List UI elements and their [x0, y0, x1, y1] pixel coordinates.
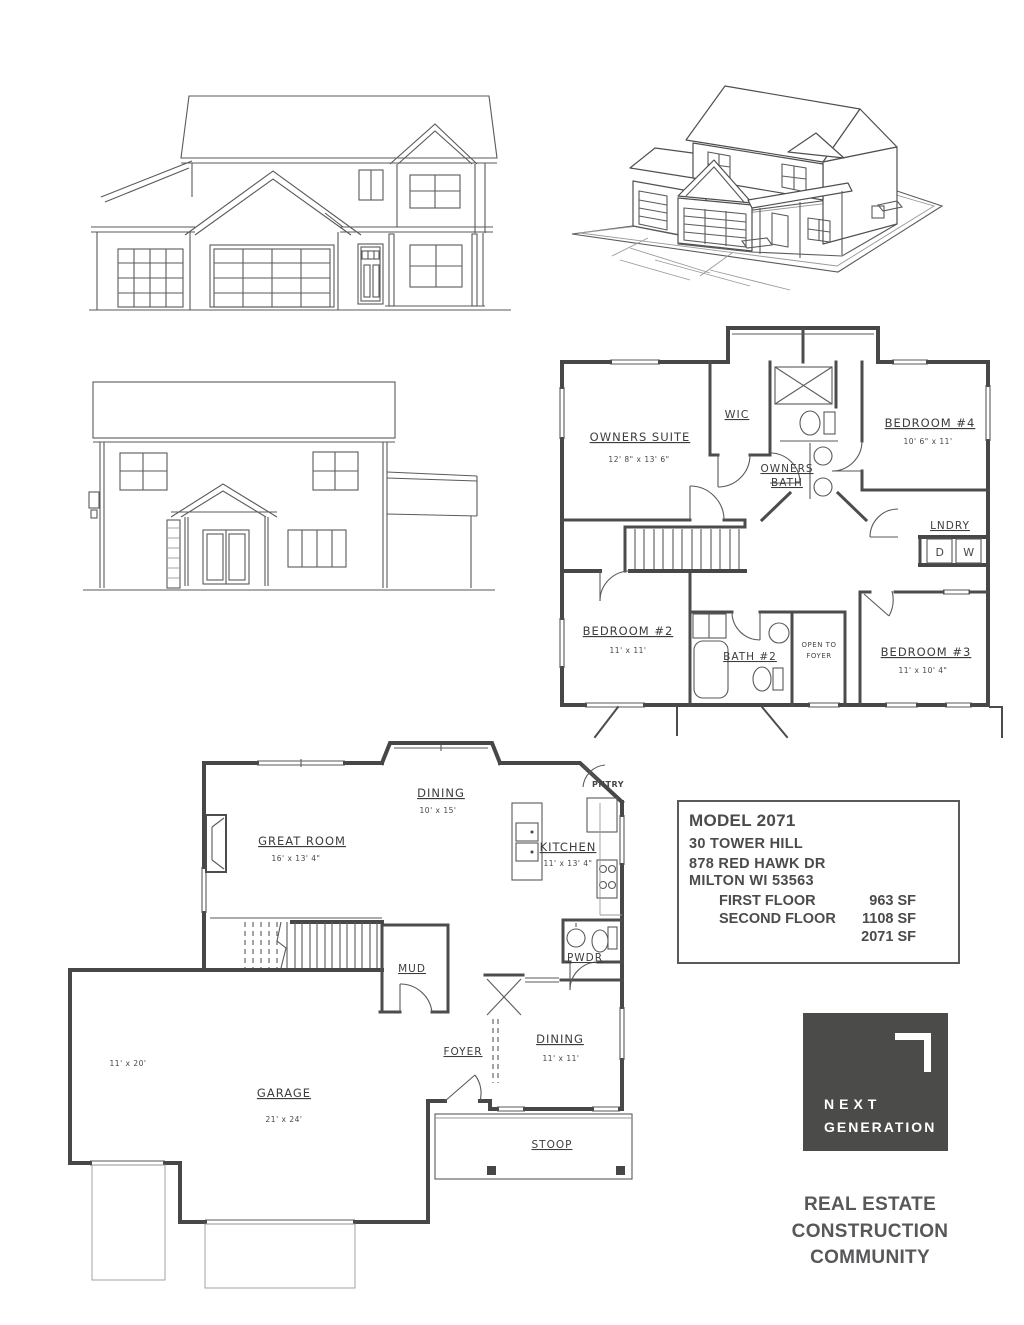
area-row-label: SECOND FLOOR [719, 911, 836, 927]
tagline-line-2: CONSTRUCTION [758, 1219, 982, 1246]
label-bedroom2: BEDROOM #2 [583, 624, 674, 638]
isometric-view-drawing [560, 48, 980, 318]
rear-patio-door [203, 530, 249, 584]
plan-info-box: MODEL 2071 30 TOWER HILL 878 RED HAWK DR… [677, 800, 960, 964]
label-great-room: GREAT ROOM [258, 834, 346, 848]
iso-front-door [772, 213, 788, 247]
front-entry-door [358, 244, 383, 304]
rear-upper-window-right [313, 452, 358, 490]
large-garage-door [210, 245, 334, 307]
front-center-gable [185, 171, 361, 235]
dims-garage: 21' x 24' [266, 1115, 303, 1124]
dims-owners-suite: 12' 8" x 13' 6" [608, 455, 669, 464]
front-first-story-walls [97, 232, 485, 310]
label-bedroom4: BEDROOM #4 [885, 416, 976, 430]
dims-bedroom2: 11' x 11' [610, 646, 647, 655]
area-row-total: 2071 SF [689, 929, 948, 945]
company-tagline: REAL ESTATE CONSTRUCTION COMMUNITY [758, 1192, 982, 1272]
label-pwdr: PWDR [567, 952, 603, 964]
kitchen-fixtures [512, 798, 622, 915]
rear-elevation-drawing [75, 368, 505, 613]
iso-right-wall [823, 147, 897, 244]
rear-chimney [167, 520, 180, 588]
rear-meter-box [89, 492, 99, 518]
label-owners-bath-1: OWNERS [760, 463, 813, 475]
fireplace [206, 815, 226, 872]
area-row-first-floor: FIRST FLOOR 963 SF [689, 893, 948, 909]
front-elevation-svg [85, 55, 515, 320]
dims-dining2: 11' x 11' [543, 1054, 580, 1063]
floor1-labels: DINING 10' x 15' GREAT ROOM 16' x 13' 4"… [110, 780, 624, 1151]
front-window-right [410, 245, 462, 287]
second-floor-svg: OWNERS SUITE 12' 8" x 13' 6" WIC OWNERS … [540, 323, 1024, 743]
label-pntry: PNTRY [592, 780, 624, 789]
area-row-second-floor: SECOND FLOOR 1108 SF [689, 911, 948, 927]
next-generation-logo: NEXT GENERATION [803, 1013, 948, 1151]
label-dining: DINING [417, 786, 465, 800]
front-porch-roof [325, 213, 493, 232]
dims-great-room: 16' x 13' 4" [271, 854, 320, 863]
area-row-value: 963 SF [869, 893, 916, 909]
rear-upper-window-left [120, 453, 167, 490]
corner-bracket-icon [895, 1033, 931, 1072]
foyer-closet-bifold [487, 978, 559, 1083]
garage-door-openings [90, 1161, 355, 1288]
dims-garage-side: 11' x 20' [110, 1059, 147, 1068]
tagline-line-1: REAL ESTATE [758, 1192, 982, 1219]
label-open-to-foyer-1: OPEN TO [802, 641, 837, 649]
powder-fixtures [567, 923, 617, 952]
refrigerator [587, 798, 617, 832]
label-dryer: D [936, 546, 945, 559]
tagline-line-3: COMMUNITY [758, 1245, 982, 1272]
address-line-1: 878 RED HAWK DR [689, 856, 948, 872]
logo-line-2: GENERATION [824, 1119, 936, 1135]
label-kitchen: KITCHEN [540, 840, 597, 854]
dims-kitchen: 11' x 13' 4" [543, 859, 592, 868]
front-main-roof [181, 96, 497, 163]
label-stoop: STOOP [532, 1139, 573, 1151]
stairs-main [210, 918, 382, 968]
iso-house [630, 86, 897, 258]
label-owners-suite: OWNERS SUITE [590, 430, 691, 444]
driveway-apron-large [205, 1224, 355, 1288]
front-left-roof [91, 161, 195, 232]
model-number: MODEL 2071 [689, 811, 948, 831]
front-elevation-drawing [85, 55, 515, 320]
stoop-post-1 [487, 1166, 496, 1175]
area-row-label: FIRST FLOOR [719, 893, 816, 909]
rear-porch-gable [171, 484, 277, 586]
rear-roof [93, 382, 395, 442]
label-bath2: BATH #2 [723, 651, 777, 663]
small-garage-door [118, 249, 183, 307]
label-garage: GARAGE [257, 1086, 311, 1100]
rear-elevation-svg [75, 368, 505, 613]
label-dining2: DINING [536, 1032, 584, 1046]
label-washer: W [963, 546, 974, 559]
community-name: 30 TOWER HILL [689, 836, 948, 852]
driveway-apron-small [92, 1165, 165, 1280]
label-wic: WIC [725, 408, 750, 421]
label-open-to-foyer-2: FOYER [806, 652, 831, 660]
stairs-up [635, 529, 739, 569]
floor2-door-swings [600, 441, 898, 640]
first-floor-plan: DINING 10' x 15' GREAT ROOM 16' x 13' 4"… [60, 735, 670, 1310]
area-row-value: 2071 SF [861, 929, 916, 945]
label-bedroom3: BEDROOM #3 [881, 645, 972, 659]
second-floor-plan: OWNERS SUITE 12' 8" x 13' 6" WIC OWNERS … [540, 323, 1024, 743]
isometric-view-svg [560, 48, 980, 318]
dims-bedroom4: 10' 6" x 11' [903, 437, 952, 446]
address-line-2: MILTON WI 53563 [689, 873, 948, 889]
label-owners-bath-2: BATH [771, 477, 803, 489]
rear-lower-window [288, 530, 346, 567]
floor2-labels: OWNERS SUITE 12' 8" x 13' 6" WIC OWNERS … [583, 408, 976, 675]
logo-wordmark: NEXT GENERATION [824, 1096, 936, 1135]
area-row-value: 1108 SF [862, 911, 916, 927]
floor1-door-swings [400, 765, 605, 1101]
front-right-gable [390, 124, 477, 233]
architectural-sheet: { "palette":{"ink":"#474747","paper":"#f… [0, 0, 1024, 1325]
dims-bedroom3: 11' x 10' 4" [898, 666, 947, 675]
label-mud: MUD [398, 963, 426, 975]
label-foyer: FOYER [443, 1046, 482, 1058]
stoop-post-2 [616, 1166, 625, 1175]
rear-side-porch [387, 472, 477, 588]
floor2-roof-stubs [595, 707, 1002, 737]
label-lndry: LNDRY [930, 520, 970, 532]
logo-line-1: NEXT [824, 1096, 936, 1112]
dims-dining: 10' x 15' [420, 806, 457, 815]
first-floor-svg: DINING 10' x 15' GREAT ROOM 16' x 13' 4"… [60, 735, 670, 1310]
